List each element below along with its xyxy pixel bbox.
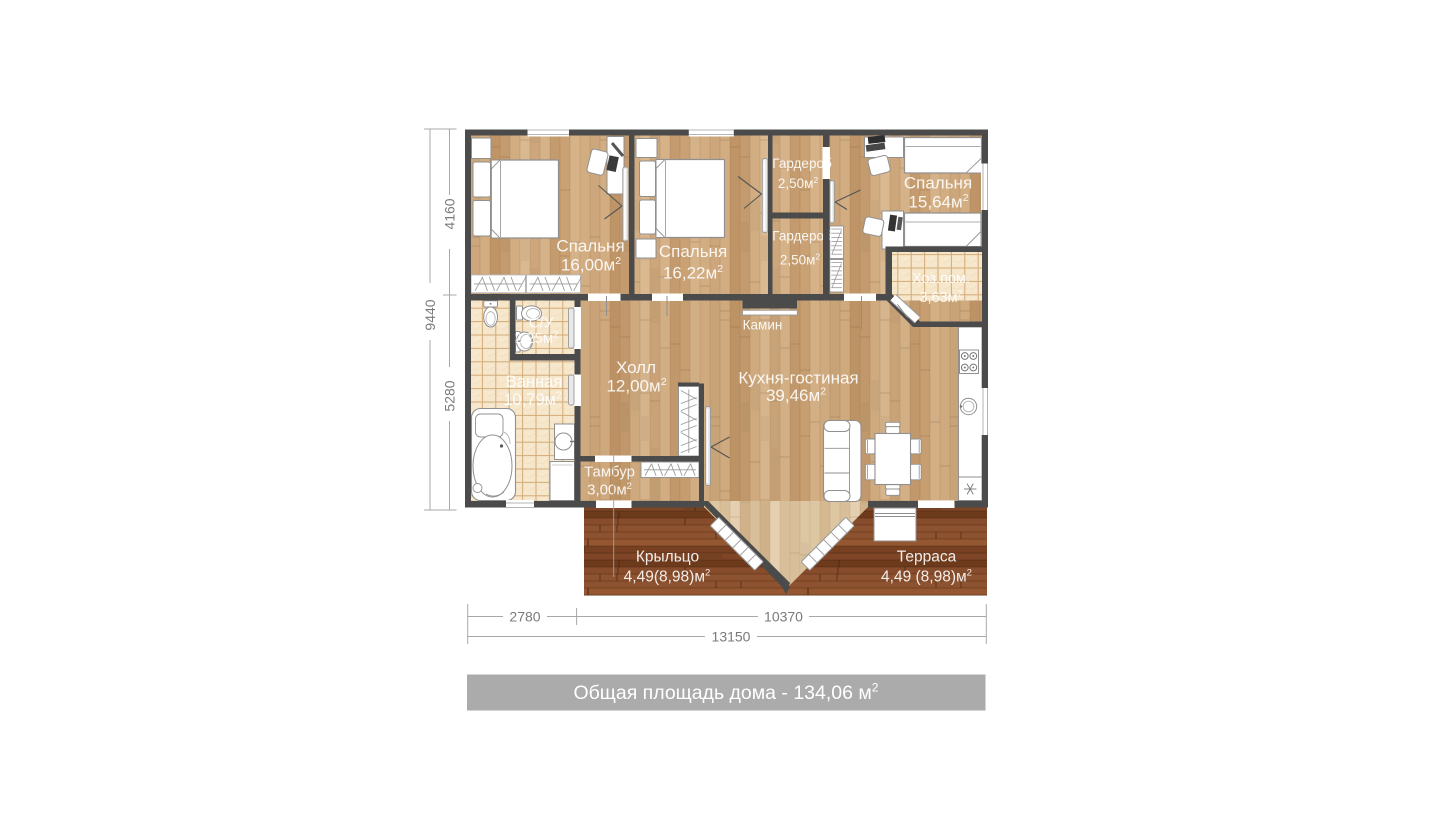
svg-text:Общая площадь дома - 134,06 м2: Общая площадь дома - 134,06 м2 [573, 681, 878, 704]
svg-text:13150: 13150 [712, 629, 751, 645]
svg-text:Хоз.пом.: Хоз.пом. [912, 271, 970, 287]
svg-text:Тамбур: Тамбур [584, 464, 635, 481]
svg-text:3,00м2: 3,00м2 [587, 481, 632, 499]
svg-text:10370: 10370 [764, 609, 803, 625]
svg-text:4,49(8,98)м2: 4,49(8,98)м2 [624, 568, 711, 586]
svg-text:4160: 4160 [442, 198, 458, 229]
svg-text:16,00м2: 16,00м2 [561, 255, 621, 275]
svg-text:9440: 9440 [422, 299, 438, 330]
svg-text:12,00м2: 12,00м2 [606, 376, 666, 396]
svg-text:Крыльцо: Крыльцо [636, 549, 699, 566]
svg-text:Кухня-гостиная: Кухня-гостиная [738, 369, 858, 388]
svg-text:39,46м2: 39,46м2 [766, 386, 826, 406]
svg-text:Спальня: Спальня [556, 237, 624, 256]
svg-text:2,25м2: 2,25м2 [514, 329, 559, 347]
svg-text:16,22м2: 16,22м2 [663, 263, 723, 283]
svg-text:2780: 2780 [509, 609, 540, 625]
svg-text:2,50м2: 2,50м2 [778, 175, 819, 191]
svg-text:3,63м2: 3,63м2 [919, 289, 962, 307]
svg-text:Спальня: Спальня [659, 242, 727, 261]
svg-text:Камин: Камин [743, 318, 783, 333]
svg-text:Холл: Холл [616, 358, 656, 377]
svg-text:10,79м2: 10,79м2 [503, 391, 562, 409]
svg-text:С/У: С/У [529, 315, 554, 332]
svg-text:5280: 5280 [442, 380, 458, 411]
svg-text:Спальня: Спальня [904, 174, 972, 193]
svg-text:Ванная: Ванная [506, 373, 563, 391]
svg-text:4,49 (8,98)м2: 4,49 (8,98)м2 [881, 568, 972, 586]
svg-text:15,64м2: 15,64м2 [908, 192, 968, 212]
svg-text:2,50м2: 2,50м2 [780, 251, 821, 267]
svg-text:Терраса: Терраса [897, 549, 957, 566]
